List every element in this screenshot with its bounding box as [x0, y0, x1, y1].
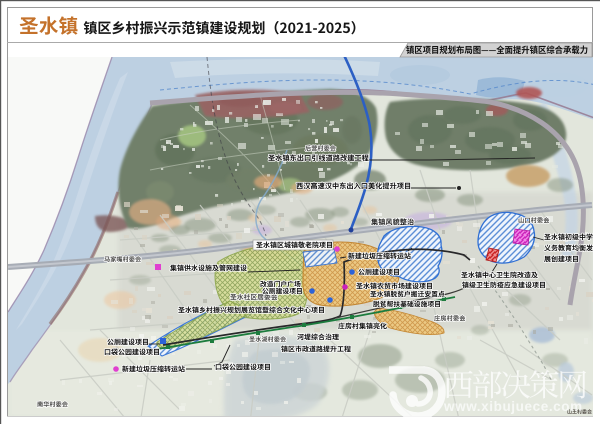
svg-text:www.xibujuece.com: www.xibujuece.com — [443, 399, 583, 414]
